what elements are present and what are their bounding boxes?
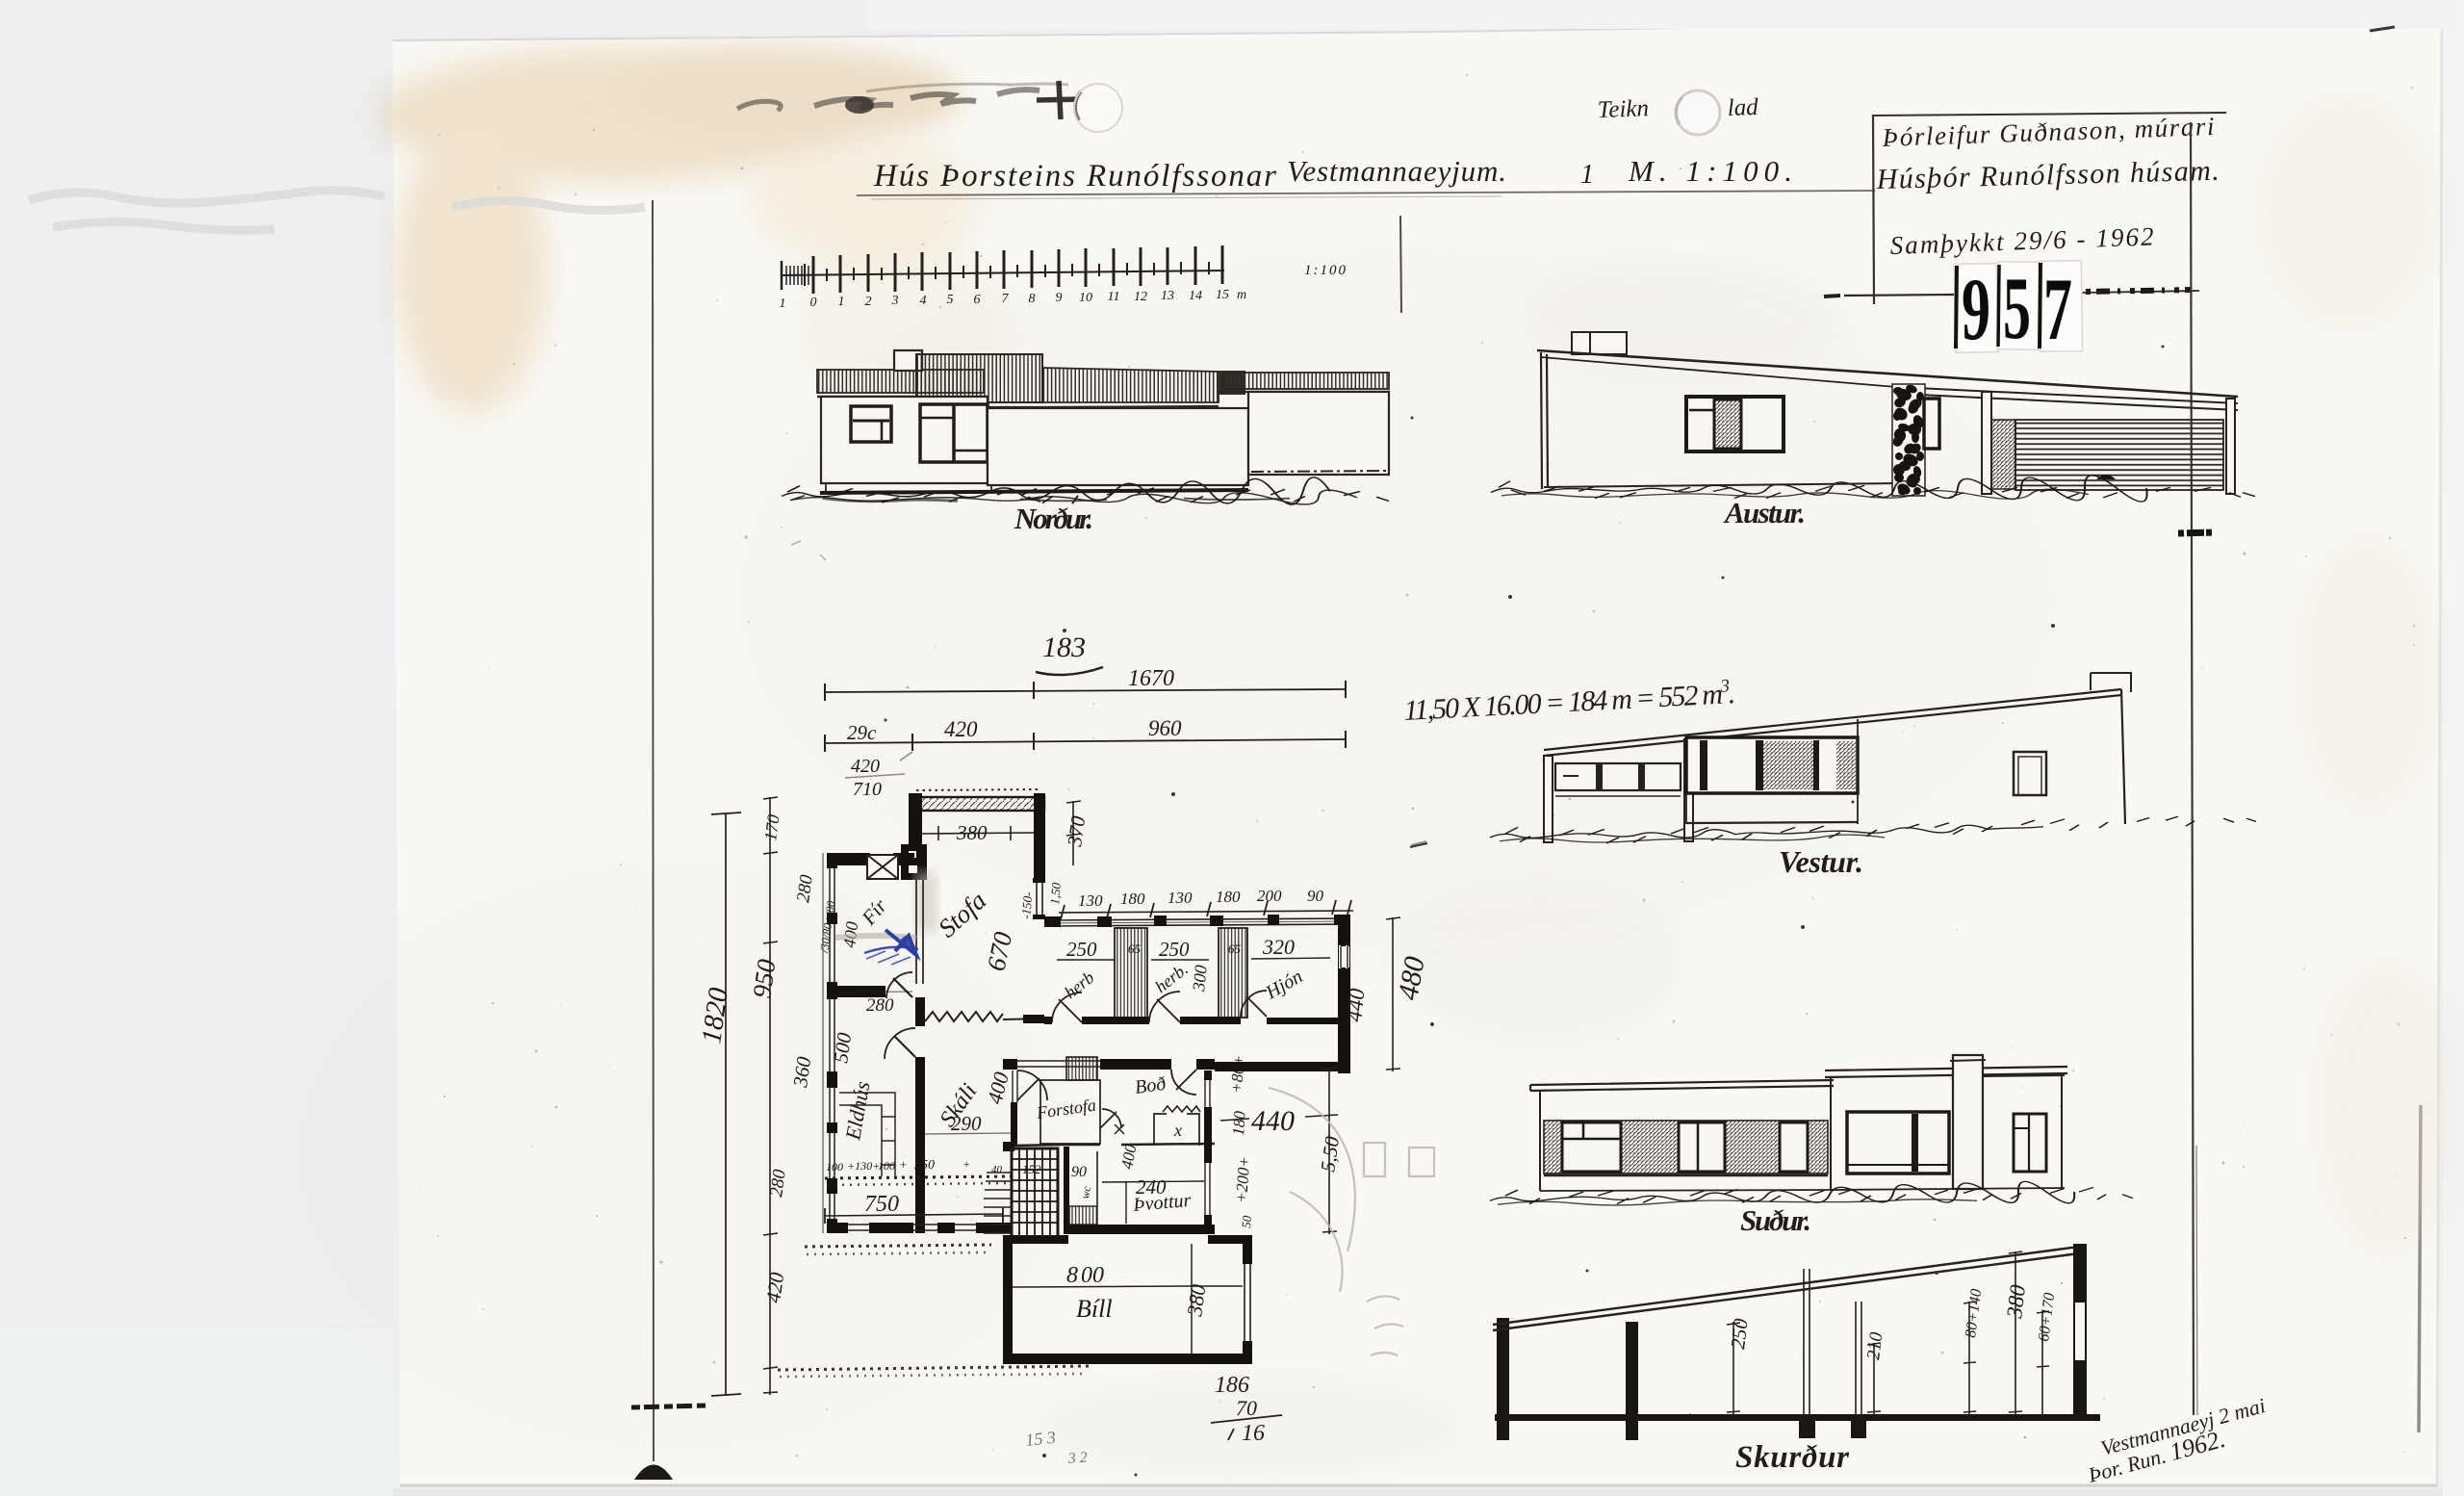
svg-text:750: 750	[864, 1192, 899, 1217]
svg-text:4: 4	[920, 294, 927, 308]
svg-text:1670: 1670	[1128, 666, 1174, 691]
svg-text:300: 300	[1189, 964, 1211, 993]
svg-text:6: 6	[974, 293, 981, 307]
svg-text:+130+: +130+	[847, 1159, 880, 1173]
svg-text:90: 90	[1307, 887, 1324, 905]
svg-text:Suður.: Suður.	[1740, 1203, 1811, 1237]
svg-text:1,50: 1,50	[1047, 882, 1064, 905]
svg-text:950: 950	[747, 957, 781, 1000]
svg-text:130: 130	[1168, 889, 1193, 907]
svg-text:Norður.: Norður.	[1014, 502, 1093, 535]
svg-text:Boð: Boð	[1134, 1073, 1168, 1098]
svg-text:250: 250	[1066, 938, 1097, 961]
svg-text:320: 320	[1262, 935, 1295, 959]
svg-text:+: +	[962, 1157, 970, 1171]
svg-text:100: 100	[878, 1159, 895, 1173]
svg-text:Teikn: Teikn	[1597, 95, 1649, 123]
svg-text:420: 420	[761, 1271, 788, 1304]
svg-text:380: 380	[1182, 1283, 1210, 1319]
svg-text:183: 183	[1042, 632, 1086, 663]
svg-text:152: 152	[1022, 1162, 1041, 1176]
svg-text:70: 70	[1236, 1396, 1257, 1420]
svg-text:440: 440	[1251, 1105, 1295, 1137]
svg-text:8: 8	[1029, 292, 1036, 306]
svg-text:250: 250	[1159, 938, 1190, 961]
svg-text:200: 200	[1257, 887, 1282, 905]
svg-text:5: 5	[2003, 259, 2031, 357]
svg-text:180: 180	[1229, 1110, 1249, 1136]
svg-text:12: 12	[1134, 290, 1147, 304]
svg-text:Austur.: Austur.	[1723, 496, 1806, 529]
svg-text:370: 370	[1063, 814, 1090, 849]
svg-text:250: 250	[1726, 1317, 1753, 1351]
svg-text:180: 180	[1216, 888, 1241, 906]
svg-text:130: 130	[1078, 891, 1103, 910]
svg-text:250: 250	[914, 1158, 935, 1173]
svg-text:Vestmannaeyjum.: Vestmannaeyjum.	[1287, 154, 1506, 188]
svg-text:65: 65	[1228, 941, 1242, 956]
svg-text:lad: lad	[1727, 94, 1758, 121]
svg-text:-150-: -150-	[1018, 891, 1035, 919]
svg-text:1: 1	[1580, 160, 1594, 190]
svg-text:M. 1:100.: M. 1:100.	[1628, 154, 1792, 188]
svg-text:360: 360	[788, 1055, 815, 1090]
svg-text:+: +	[899, 1157, 908, 1172]
svg-text:90: 90	[1071, 1164, 1087, 1180]
svg-text:9: 9	[1962, 260, 1990, 358]
svg-text:1: 1	[780, 297, 786, 311]
svg-text:5: 5	[947, 293, 954, 307]
svg-text:15: 15	[1216, 288, 1229, 302]
svg-text:290: 290	[951, 1112, 982, 1135]
svg-text:x: x	[1173, 1121, 1182, 1140]
svg-text:+200+: +200+	[1232, 1156, 1253, 1204]
svg-text:1: 1	[838, 295, 845, 309]
svg-text:65: 65	[1128, 941, 1142, 956]
svg-text:7: 7	[2043, 260, 2072, 358]
svg-text:15 3: 15 3	[1024, 1428, 1056, 1450]
svg-text:960: 960	[1148, 716, 1182, 740]
svg-text:800: 800	[1066, 1263, 1104, 1288]
svg-text:710: 710	[853, 779, 882, 800]
svg-text:Skurður: Skurður	[1735, 1440, 1850, 1475]
svg-text:280: 280	[766, 1168, 790, 1199]
svg-text:0: 0	[810, 296, 817, 310]
svg-text:280: 280	[866, 995, 894, 1016]
svg-text:186: 186	[1215, 1373, 1249, 1398]
svg-text:100: 100	[826, 1160, 843, 1174]
svg-text:280: 280	[793, 873, 817, 904]
svg-text:Hús Þorsteins Runólfssonar: Hús Þorsteins Runólfssonar	[873, 159, 1276, 193]
svg-text:Bíll: Bíll	[1076, 1295, 1113, 1323]
svg-text:420: 420	[944, 717, 978, 741]
svg-text:380: 380	[956, 821, 988, 844]
svg-text:13: 13	[1161, 289, 1174, 303]
svg-text:380: 380	[2002, 1283, 2030, 1321]
svg-text:210: 210	[1863, 1330, 1886, 1360]
svg-text:180: 180	[1120, 890, 1145, 908]
svg-text:40: 40	[991, 1164, 1003, 1175]
svg-text:420: 420	[851, 756, 880, 777]
svg-text:Vestur.: Vestur.	[1779, 844, 1863, 879]
svg-text:3 2: 3 2	[1066, 1450, 1088, 1467]
svg-text:16: 16	[1242, 1421, 1265, 1446]
svg-text:5,50: 5,50	[1316, 1134, 1344, 1173]
svg-text:2: 2	[865, 295, 872, 309]
svg-text:29c: 29c	[847, 721, 877, 744]
svg-text:170: 170	[760, 813, 783, 842]
svg-text:440: 440	[1342, 987, 1370, 1022]
svg-text:+80+: +80+	[1227, 1054, 1248, 1094]
svg-text:3: 3	[891, 294, 899, 308]
svg-text:50: 50	[1239, 1215, 1254, 1229]
svg-text:1:100: 1:100	[1304, 263, 1347, 278]
svg-text:500: 500	[829, 1031, 856, 1065]
svg-text:m: m	[1237, 288, 1246, 302]
svg-text:14: 14	[1189, 289, 1202, 303]
svg-text:10: 10	[1079, 291, 1092, 305]
svg-text:11: 11	[1108, 290, 1120, 304]
svg-text:7: 7	[1002, 292, 1010, 306]
svg-text:9: 9	[1056, 291, 1063, 305]
